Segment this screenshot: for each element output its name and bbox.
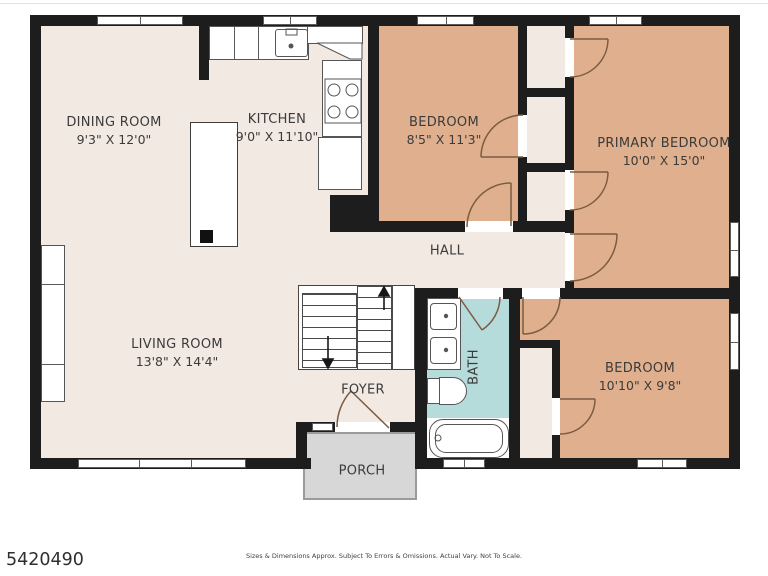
room-name: PRIMARY BEDROOM [597, 135, 730, 152]
floor-plan: DINING ROOM 9'3" X 12'0" KITCHEN 9'0" X … [0, 0, 768, 576]
room-name: FOYER [341, 382, 385, 399]
room-label-bedroom-2: BEDROOM 8'5" X 11'3" [407, 114, 482, 148]
wall-b3-closet-east-upper [552, 340, 560, 398]
island-sink [200, 230, 213, 243]
room-label-porch: PORCH [339, 463, 386, 480]
door-opening-front [335, 422, 390, 432]
window-bath [443, 459, 485, 468]
stairs-down-flight [302, 293, 357, 368]
kitchen-counter-east [322, 60, 362, 137]
window-bedroom-2 [417, 16, 474, 25]
toilet-bowl [439, 377, 467, 405]
room-label-kitchen: KITCHEN 9'0" X 11'10" [236, 111, 319, 145]
door-opening-closet-1 [565, 38, 574, 77]
room-dims: 13'8" X 14'4" [131, 353, 223, 370]
room-label-primary: PRIMARY BEDROOM 10'0" X 15'0" [597, 135, 730, 169]
room-dims: 9'0" X 11'10" [236, 128, 319, 145]
window-foyer-sidelight [312, 423, 333, 431]
vanity-sink-1 [430, 303, 457, 330]
disclaimer-text: Sizes & Dimensions Approx. Subject To Er… [0, 552, 768, 560]
kitchen-counter-corner [307, 26, 363, 44]
room-label-dining: DINING ROOM 9'3" X 12'0" [66, 114, 161, 148]
door-opening-closet-2 [518, 115, 527, 157]
stairs-up-flight [357, 285, 392, 370]
room-name: BATH [466, 349, 483, 385]
window-living-band [78, 459, 246, 468]
door-opening-bath [458, 288, 503, 299]
room-dims: 10'10" X 9'8" [599, 377, 682, 394]
image-top-border [0, 3, 768, 4]
wall-bath-west [415, 288, 427, 469]
wall-dining-kitchen-stub [199, 15, 209, 80]
room-name: LIVING ROOM [131, 336, 223, 353]
bathtub-inner [435, 424, 503, 453]
door-opening-bedroom-2 [465, 221, 513, 232]
room-label-bath: BATH [466, 349, 483, 385]
room-dims: 8'5" X 11'3" [407, 131, 482, 148]
built-in-shelving [41, 245, 65, 402]
door-opening-b3-closet [552, 398, 560, 435]
kitchen-island [190, 122, 238, 247]
window-primary-north [589, 16, 642, 25]
vanity-sink-2 [430, 337, 457, 364]
room-label-living: LIVING ROOM 13'8" X 14'4" [131, 336, 223, 370]
room-label-hall: HALL [430, 243, 464, 260]
window-bedroom-3-east [730, 313, 739, 370]
room-label-foyer: FOYER [341, 382, 385, 399]
room-name: BEDROOM [599, 360, 682, 377]
wall-west [30, 15, 41, 469]
room-name: HALL [430, 243, 464, 260]
window-bedroom-3-south [637, 459, 687, 468]
window-primary-east [730, 222, 739, 277]
room-name: PORCH [339, 463, 386, 480]
room-name: DINING ROOM [66, 114, 161, 131]
wall-foyer-jog [296, 422, 307, 469]
floor-bedroom-3-closet [520, 348, 552, 458]
room-dims: 10'0" X 15'0" [597, 152, 730, 169]
refrigerator [318, 137, 362, 190]
wall-bath-east [509, 288, 520, 469]
wall-b3-closet-east-lower [552, 435, 560, 458]
window-kitchen [263, 16, 317, 25]
window-dining [97, 16, 183, 25]
kitchen-sink [275, 29, 308, 57]
wall-closet-divider-1 [518, 88, 574, 97]
room-dims: 9'3" X 12'0" [66, 131, 161, 148]
stairs-rail-line [392, 285, 393, 370]
room-label-bedroom-3: BEDROOM 10'10" X 9'8" [599, 360, 682, 394]
door-opening-closet-3 [565, 170, 574, 210]
room-name: KITCHEN [236, 111, 319, 128]
door-opening-primary [565, 233, 574, 281]
room-name: BEDROOM [407, 114, 482, 131]
door-opening-bedroom-3 [522, 288, 560, 299]
